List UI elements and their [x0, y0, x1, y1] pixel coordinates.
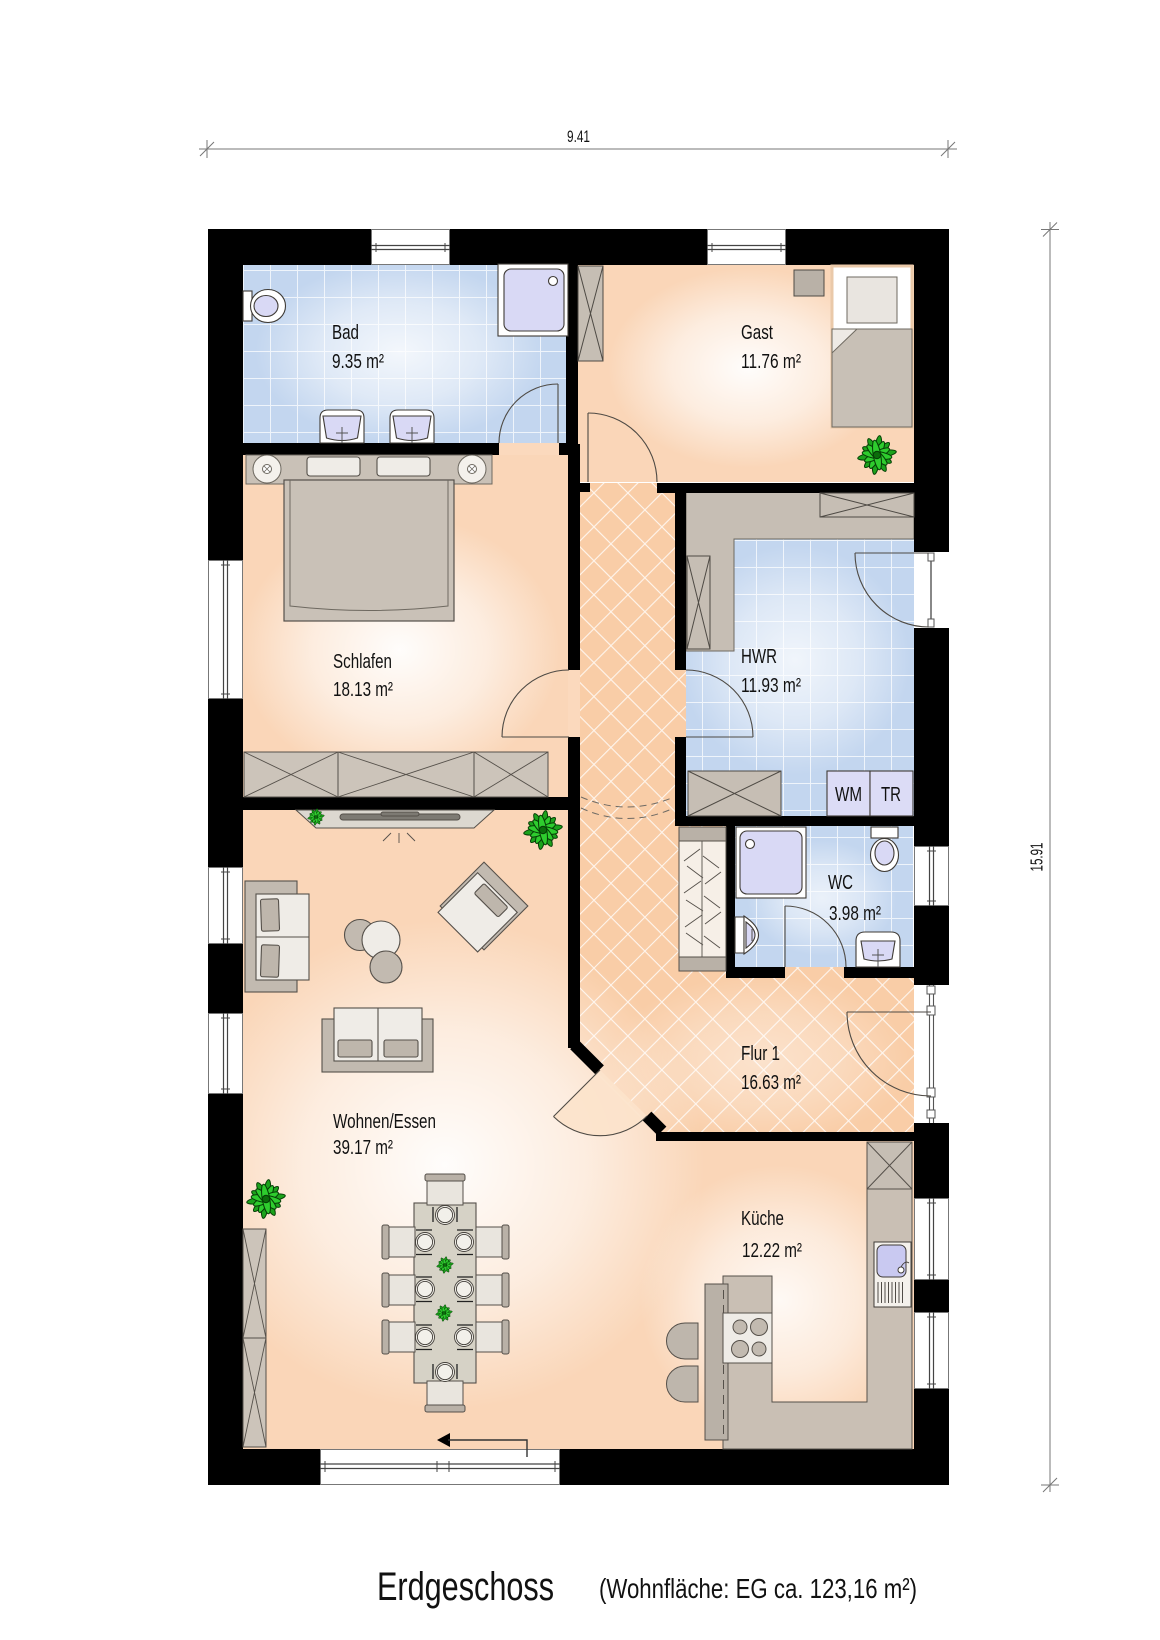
svg-text:9.41: 9.41: [567, 128, 590, 146]
svg-text:Schlafen: Schlafen: [333, 651, 392, 673]
svg-text:12.22 m²: 12.22 m²: [742, 1240, 802, 1262]
svg-text:18.13 m²: 18.13 m²: [333, 679, 393, 701]
svg-text:TR: TR: [881, 784, 901, 806]
svg-text:Wohnen/Essen: Wohnen/Essen: [333, 1111, 436, 1133]
svg-text:11.93 m²: 11.93 m²: [741, 675, 801, 697]
svg-text:16.63 m²: 16.63 m²: [741, 1072, 801, 1094]
svg-text:Erdgeschoss: Erdgeschoss: [377, 1565, 554, 1609]
svg-text:9.35 m²: 9.35 m²: [332, 351, 384, 373]
svg-text:(Wohnfläche: EG ca. 123,16 m²: (Wohnfläche: EG ca. 123,16 m²): [599, 1573, 917, 1604]
svg-text:WM: WM: [835, 784, 862, 806]
svg-text:HWR: HWR: [741, 646, 777, 668]
svg-text:Bad: Bad: [332, 322, 359, 344]
svg-text:11.76 m²: 11.76 m²: [741, 351, 801, 373]
svg-text:WC: WC: [828, 872, 853, 894]
svg-text:3.98 m²: 3.98 m²: [829, 903, 881, 925]
svg-text:39.17 m²: 39.17 m²: [333, 1137, 393, 1159]
svg-text:Flur 1: Flur 1: [741, 1043, 780, 1065]
svg-text:15.91: 15.91: [1027, 843, 1047, 872]
svg-text:Gast: Gast: [741, 322, 773, 344]
svg-text:Küche: Küche: [741, 1208, 784, 1230]
